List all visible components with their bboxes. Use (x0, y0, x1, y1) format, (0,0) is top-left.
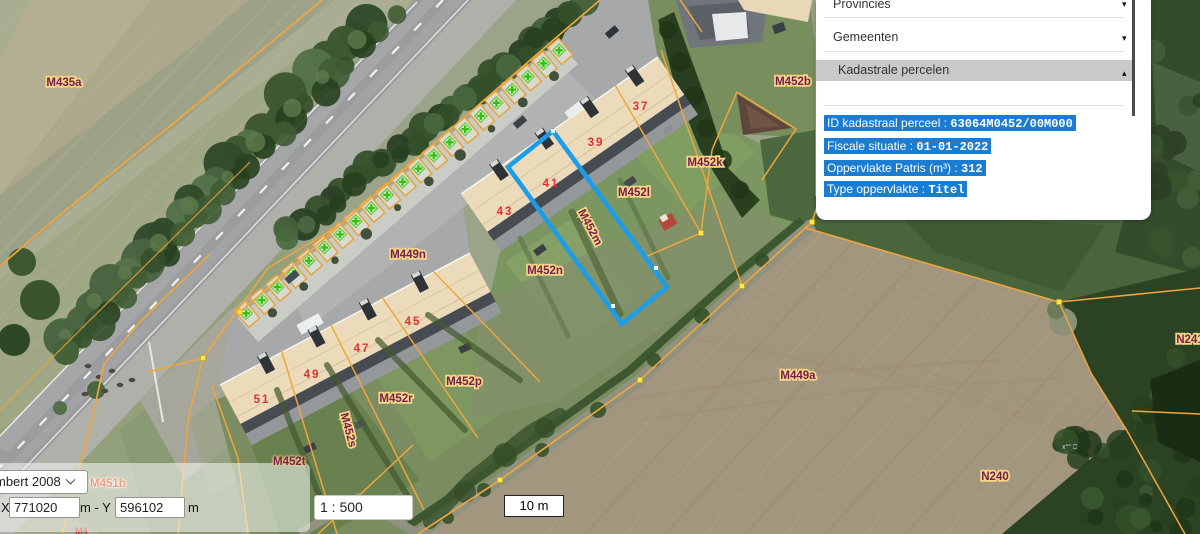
svg-text:M449n: M449n (390, 249, 426, 261)
svg-text:M452b: M452b (775, 76, 811, 88)
svg-text:N241: N241 (1176, 334, 1200, 346)
svg-text:37: 37 (633, 101, 650, 113)
svg-text:M452p: M452p (446, 376, 482, 388)
svg-text:39: 39 (588, 137, 605, 149)
svg-text:41: 41 (543, 178, 560, 190)
svg-text:M452l: M452l (618, 187, 650, 199)
svg-text:x°° ⎕: x°° ⎕ (1062, 443, 1077, 451)
svg-text:47: 47 (354, 343, 371, 355)
svg-text:M435a: M435a (46, 77, 82, 89)
svg-text:N240: N240 (981, 471, 1009, 483)
svg-text:M452r: M452r (379, 393, 413, 405)
svg-text:M452n: M452n (527, 265, 563, 277)
svg-text:43: 43 (497, 206, 514, 218)
svg-text:45: 45 (405, 316, 422, 328)
svg-text:49: 49 (304, 369, 321, 381)
svg-text:51: 51 (254, 394, 271, 406)
svg-text:M449a: M449a (780, 370, 816, 382)
svg-text:M452k: M452k (687, 157, 723, 169)
